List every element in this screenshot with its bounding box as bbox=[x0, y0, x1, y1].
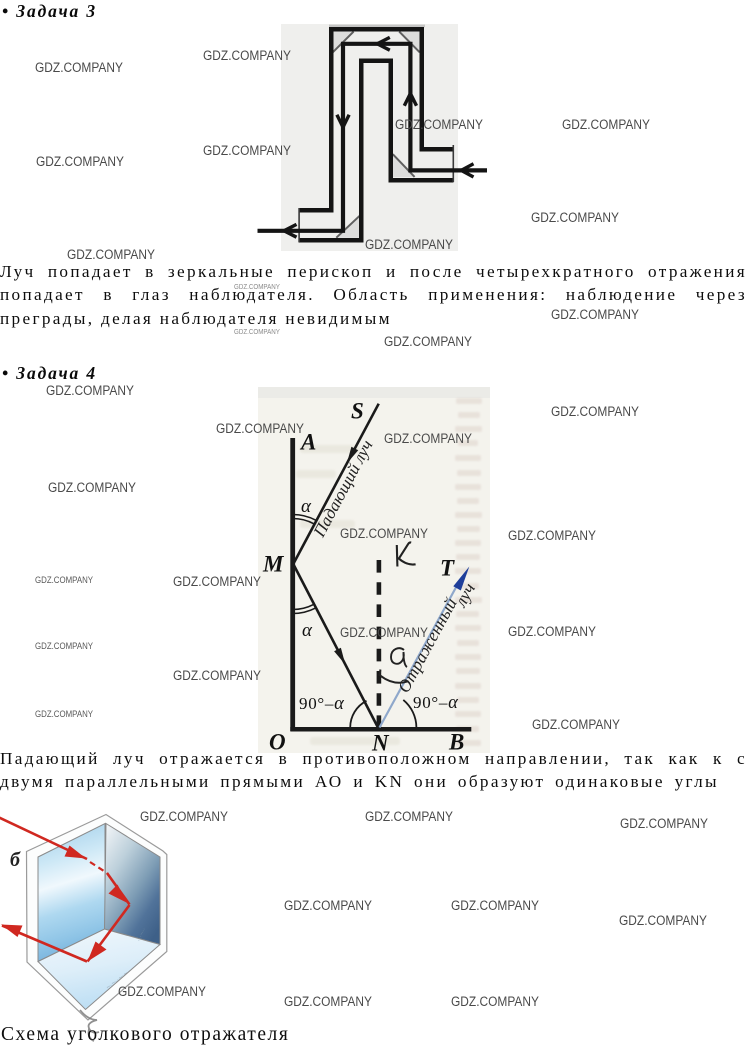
svg-text:90°–α: 90°–α bbox=[299, 694, 345, 714]
svg-text:б: б bbox=[10, 849, 21, 871]
svg-text:90°–α: 90°–α bbox=[413, 693, 459, 713]
svg-text:α: α bbox=[302, 620, 313, 641]
svg-text:M: M bbox=[262, 552, 285, 577]
svg-text:T: T bbox=[440, 556, 455, 581]
svg-text:α: α bbox=[301, 496, 312, 517]
svg-text:S: S bbox=[351, 399, 364, 424]
